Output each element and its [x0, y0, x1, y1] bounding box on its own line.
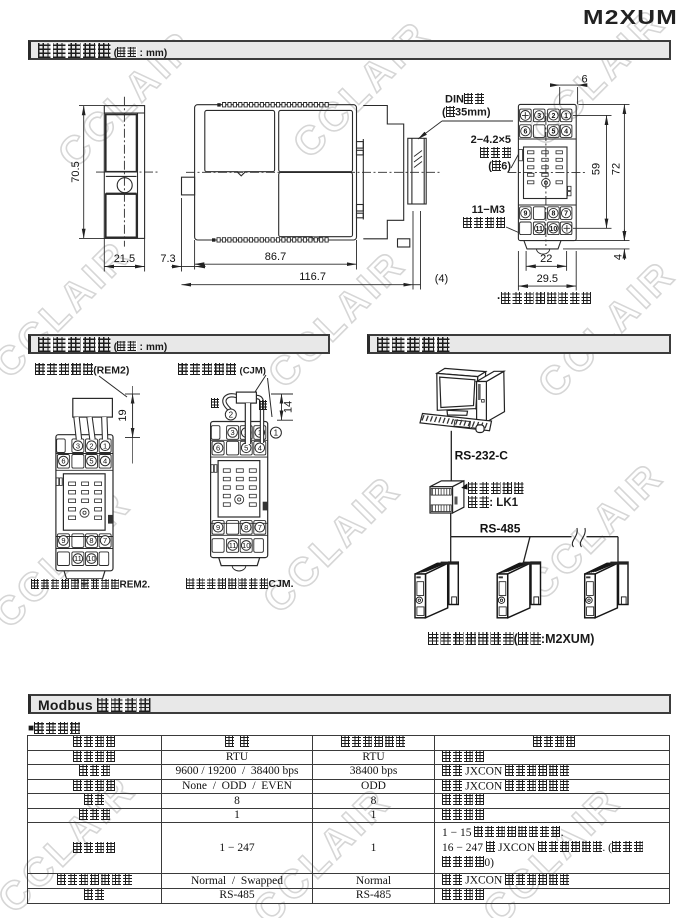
- svg-text:19: 19: [117, 409, 129, 421]
- svg-text:116.7: 116.7: [299, 271, 326, 283]
- svg-text:14: 14: [283, 401, 295, 413]
- svg-text:4: 4: [564, 129, 568, 136]
- svg-text:6: 6: [581, 74, 587, 86]
- svg-text:86.7: 86.7: [265, 251, 286, 263]
- svg-text:2: 2: [551, 113, 555, 120]
- svg-text:9: 9: [523, 211, 527, 218]
- svg-text:6: 6: [523, 129, 527, 136]
- svg-text:11: 11: [535, 226, 543, 233]
- svg-text:RS-232-C: RS-232-C: [455, 449, 509, 463]
- svg-text:10: 10: [550, 226, 558, 233]
- svg-text:2: 2: [229, 410, 234, 419]
- svg-text:29.5: 29.5: [537, 273, 558, 285]
- svg-text:(4): (4): [435, 273, 448, 285]
- svg-text:3: 3: [537, 113, 541, 120]
- svg-text:21.5: 21.5: [114, 253, 135, 265]
- svg-text:7.3: 7.3: [160, 253, 175, 265]
- svg-text:72: 72: [611, 163, 623, 175]
- svg-text:1: 1: [564, 113, 568, 120]
- svg-text:1: 1: [274, 428, 279, 437]
- svg-text:7: 7: [564, 211, 568, 218]
- svg-text:59: 59: [591, 163, 603, 175]
- svg-text:22: 22: [540, 253, 552, 265]
- svg-text:4: 4: [613, 254, 625, 260]
- svg-text:8: 8: [551, 211, 555, 218]
- svg-text:5: 5: [551, 129, 555, 136]
- svg-text:RS-485: RS-485: [480, 522, 521, 536]
- svg-text:70.5: 70.5: [70, 161, 82, 182]
